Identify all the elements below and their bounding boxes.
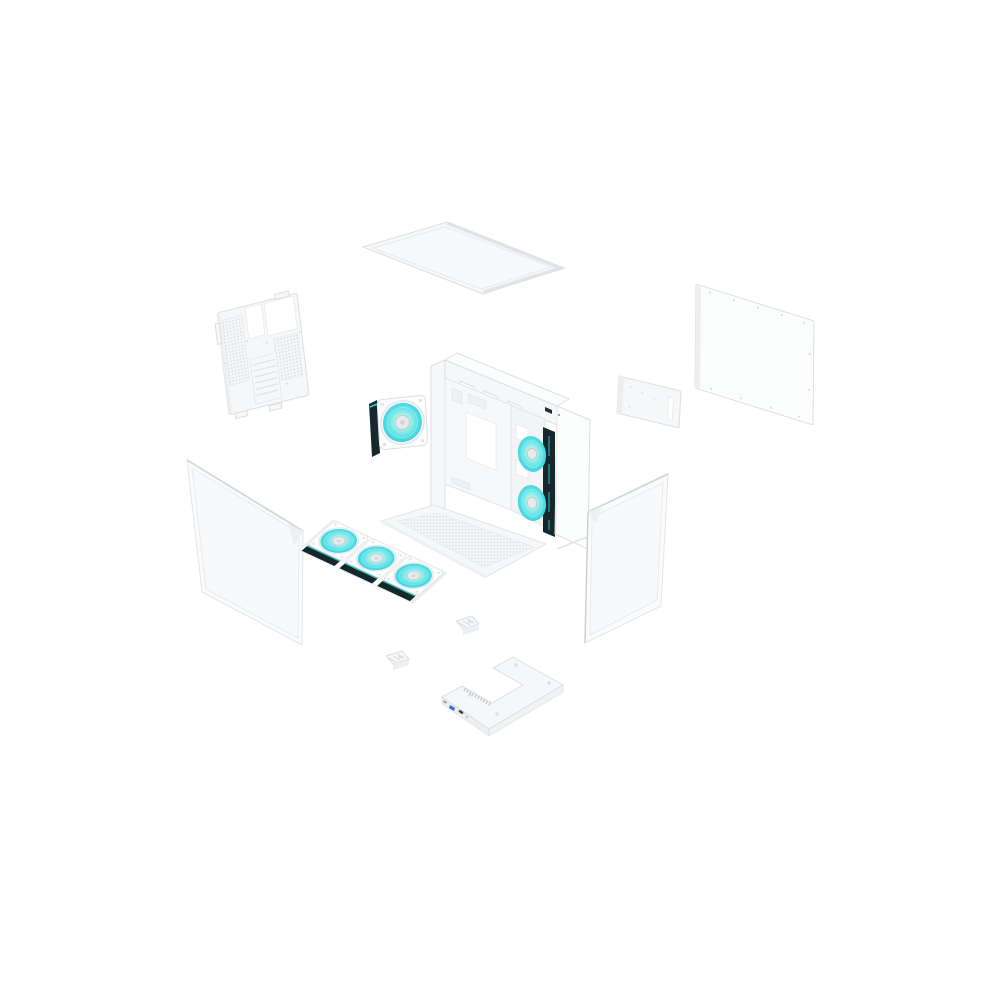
top-panel: Top panel / dust filter: [363, 222, 563, 294]
led-hole: [466, 716, 468, 718]
chassis-rear-frame: [431, 360, 445, 519]
chassis: Main chassis frame with motherboard tray: [381, 353, 590, 577]
chassis-front-slab: [555, 406, 590, 549]
front-glass: Tempered glass front panel: [585, 474, 668, 643]
vented-panel-psu-vent: [250, 353, 281, 404]
mounting-bracket-1: Mounting bracket: [456, 616, 479, 635]
front-base-frame: Front I/O base frame: [442, 657, 563, 736]
solid-panel-face: [701, 289, 811, 421]
exploded-pc-case-render: Top panel / dust filter Vented steel sid…: [0, 0, 1000, 1000]
base-frame-top: [442, 657, 563, 729]
rear-bracket-slot: [667, 397, 673, 420]
vented-side-panel: Vented steel side panel: [214, 289, 310, 422]
mounting-bracket-2: Mounting bracket: [386, 651, 409, 670]
vented-panel-cutout-2: [264, 296, 297, 336]
rear-fan-frame-group: [377, 395, 428, 450]
bracket-hole: [399, 656, 402, 659]
rear-bracket-panel: Rear bracket panel: [617, 375, 681, 429]
side-glass: Tempered glass side panel: [187, 460, 303, 645]
power-button: [558, 414, 560, 416]
product-photo: Exploded isometric view of a white mid-t…: [0, 0, 1000, 1000]
bracket-hole: [469, 621, 472, 624]
solid-side-panel: Solid side panel: [695, 284, 814, 425]
vented-panel-cutout-1: [245, 304, 265, 339]
rear-fan: 120 mm ARGB fan: [369, 395, 428, 457]
solid-panel-fold: [695, 284, 701, 390]
